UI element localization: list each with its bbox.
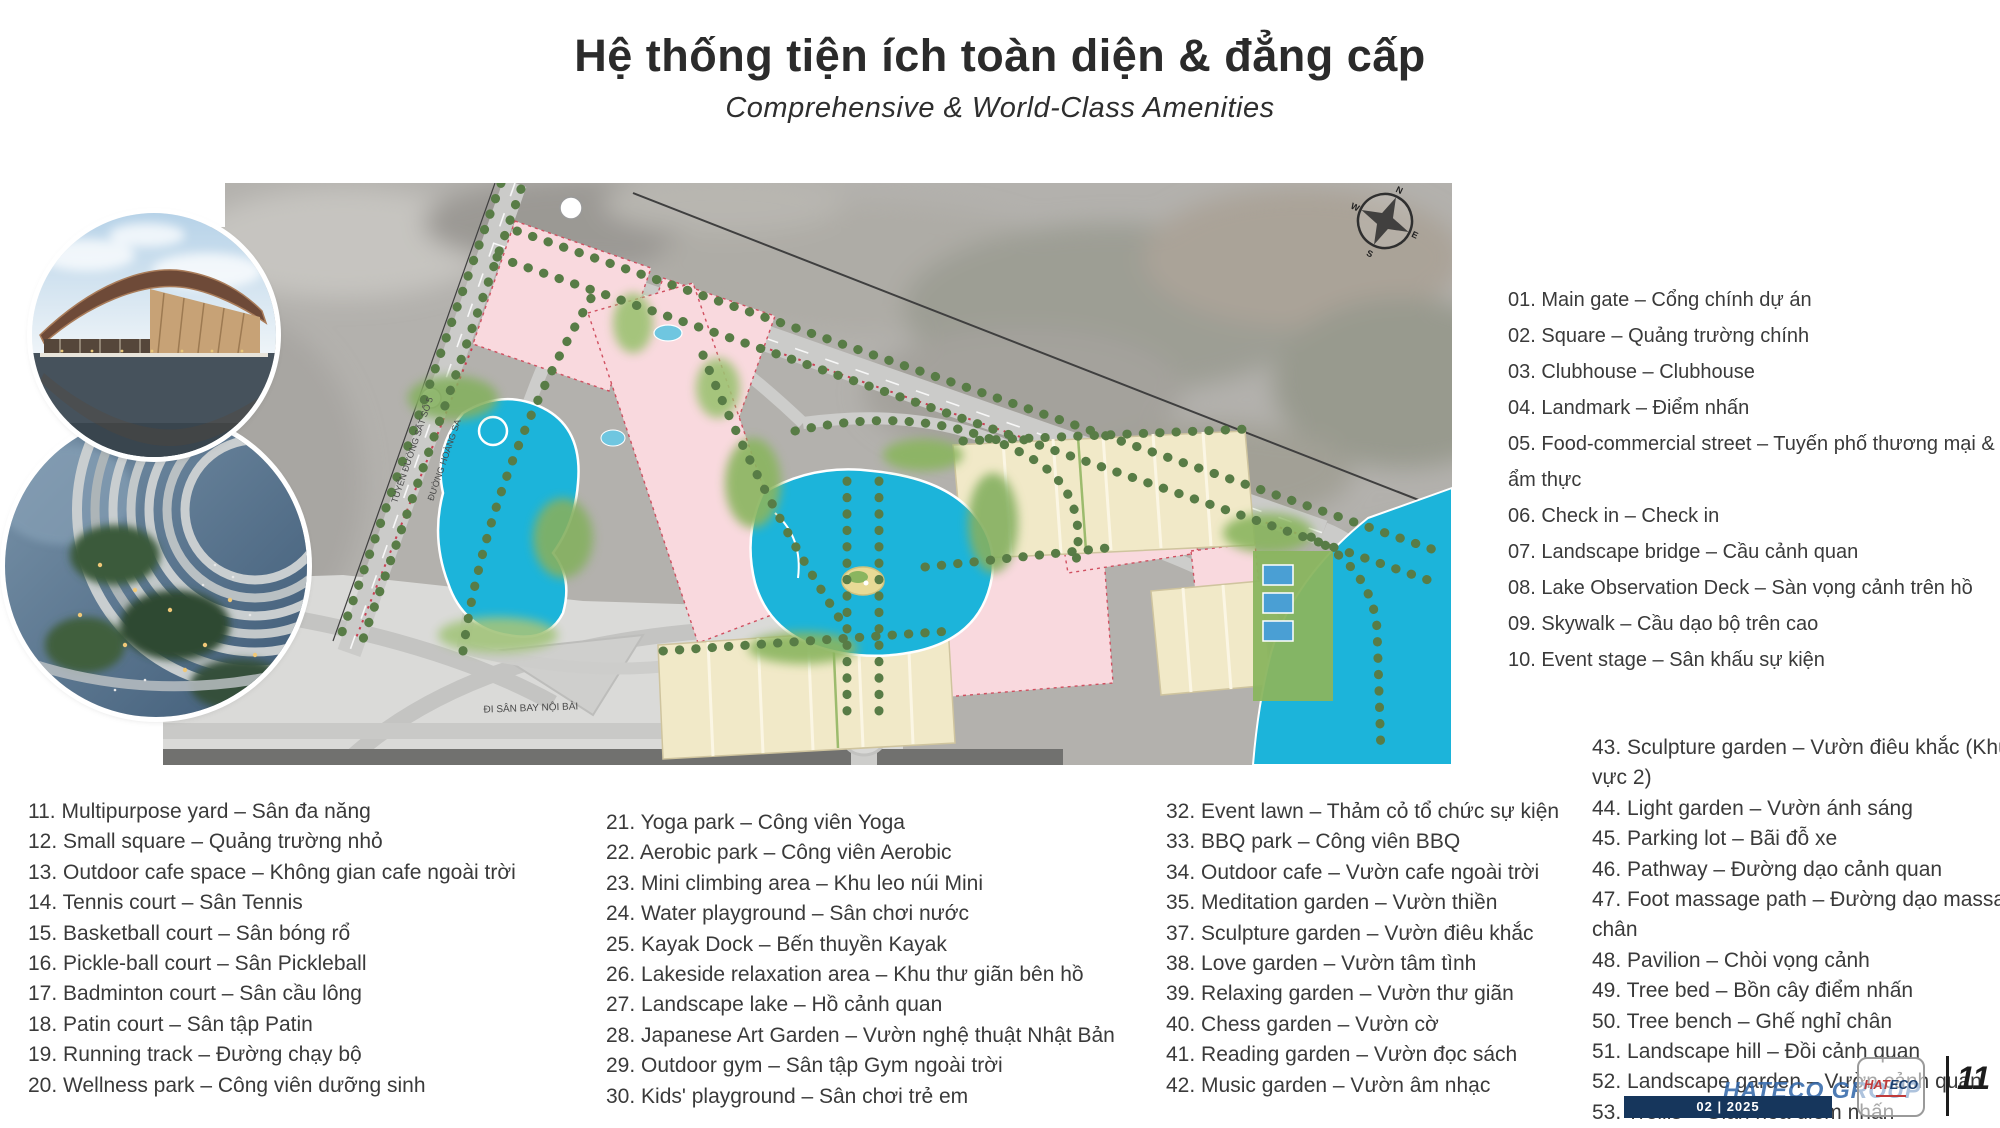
list-item: 43. Sculpture garden – Vườn điêu khắc (K…: [1592, 733, 2000, 794]
list-item: 49. Tree bed – Bồn cây điểm nhấn: [1592, 976, 2000, 1006]
list-item: 17. Badminton court – Sân cầu lông: [28, 979, 593, 1009]
list-item: 03. Clubhouse – Clubhouse: [1508, 354, 2000, 390]
list-item: 40. Chess garden – Vườn cờ: [1166, 1010, 1586, 1040]
page-subtitle: Comprehensive & World-Class Amenities: [0, 92, 2000, 125]
list-item: 04. Landmark – Điểm nhấn: [1508, 390, 2000, 426]
masterplan-canvas: N E S W TUYẾN ĐƯỜNG SẮT SỐ 5 ĐƯỜNG HOÀNG…: [163, 183, 1452, 765]
list-item: 41. Reading garden – Vườn đọc sách: [1166, 1040, 1586, 1070]
amenities-column-3: 32. Event lawn – Thảm cỏ tổ chức sự kiện…: [1166, 797, 1586, 1101]
list-item: 50. Tree bench – Ghế nghỉ chân: [1592, 1007, 2000, 1037]
list-item: 15. Basketball court – Sân bóng rổ: [28, 919, 593, 949]
clubhouse-photo: [32, 213, 276, 457]
list-item: 19. Running track – Đường chạy bộ: [28, 1040, 593, 1070]
list-item: 44. Light garden – Vườn ánh sáng: [1592, 794, 2000, 824]
page-number-divider: [1946, 1056, 1949, 1116]
list-item: 39. Relaxing garden – Vườn thư giãn: [1166, 979, 1586, 1009]
list-item: 34. Outdoor cafe – Vườn cafe ngoài trời: [1166, 858, 1586, 888]
hateco-logo: HATECO: [1857, 1057, 1925, 1117]
list-item: 46. Pathway – Đường dạo cảnh quan: [1592, 855, 2000, 885]
list-item: 13. Outdoor cafe space – Không gian cafe…: [28, 858, 593, 888]
amenities-column-4: 43. Sculpture garden – Vườn điêu khắc (K…: [1592, 733, 2000, 1128]
list-item: 48. Pavilion – Chòi vọng cảnh: [1592, 946, 2000, 976]
list-item: 22. Aerobic park – Công viên Aerobic: [606, 838, 1171, 868]
page-number: 11: [1957, 1060, 1990, 1097]
amenities-column-1: 11. Multipurpose yard – Sân đa năng12. S…: [28, 797, 593, 1101]
page-header: Hệ thống tiện ích toàn diện & đẳng cấp C…: [0, 30, 2000, 125]
list-item: 24. Water playground – Sân chơi nước: [606, 899, 1171, 929]
list-item: 38. Love garden – Vườn tâm tình: [1166, 949, 1586, 979]
list-item: 05. Food-commercial street – Tuyến phố t…: [1508, 426, 2000, 498]
page-title: Hệ thống tiện ích toàn diện & đẳng cấp: [0, 30, 2000, 82]
list-item: 26. Lakeside relaxation area – Khu thư g…: [606, 960, 1171, 990]
list-item: 37. Sculpture garden – Vườn điêu khắc: [1166, 919, 1586, 949]
logo-rule: [1876, 1095, 1906, 1097]
list-item: 01. Main gate – Cổng chính dự án: [1508, 282, 2000, 318]
list-item: 51. Landscape hill – Đồi cảnh quan: [1592, 1037, 2000, 1067]
list-item: 18. Patin court – Sân tập Patin: [28, 1010, 593, 1040]
list-item: 47. Foot massage path – Đường dạo massag…: [1592, 885, 2000, 946]
list-item: 06. Check in – Check in: [1508, 498, 2000, 534]
list-item: 12. Small square – Quảng trường nhỏ: [28, 827, 593, 857]
list-item: 21. Yoga park – Công viên Yoga: [606, 808, 1171, 838]
amphitheater-photo: [5, 415, 307, 717]
list-item: 30. Kids' playground – Sân chơi trẻ em: [606, 1082, 1171, 1112]
amenities-column-2: 21. Yoga park – Công viên Yoga22. Aerobi…: [606, 808, 1171, 1112]
list-item: 27. Landscape lake – Hồ cảnh quan: [606, 990, 1171, 1020]
logo-part-blue: ECO: [1890, 1077, 1918, 1092]
amenities-column-right: 01. Main gate – Cổng chính dự án02. Squa…: [1508, 282, 2000, 678]
list-item: 29. Outdoor gym – Sân tập Gym ngoài trời: [606, 1051, 1171, 1081]
list-item: 20. Wellness park – Công viên dưỡng sinh: [28, 1071, 593, 1101]
list-item: 08. Lake Observation Deck – Sàn vọng cản…: [1508, 570, 2000, 606]
list-item: 11. Multipurpose yard – Sân đa năng: [28, 797, 593, 827]
list-item: 07. Landscape bridge – Cầu cảnh quan: [1508, 534, 2000, 570]
list-item: 28. Japanese Art Garden – Vườn nghệ thuậ…: [606, 1021, 1171, 1051]
list-item: 10. Event stage – Sân khấu sự kiện: [1508, 642, 2000, 678]
list-item: 16. Pickle-ball court – Sân Pickleball: [28, 949, 593, 979]
list-item: 45. Parking lot – Bãi đỗ xe: [1592, 824, 2000, 854]
list-item: 02. Square – Quảng trường chính: [1508, 318, 2000, 354]
hateco-logo-text: HATECO: [1864, 1077, 1918, 1092]
masterplan-map: N E S W TUYẾN ĐƯỜNG SẮT SỐ 5 ĐƯỜNG HOÀNG…: [163, 183, 1452, 765]
list-item: 33. BBQ park – Công viên BBQ: [1166, 827, 1586, 857]
list-item: 35. Meditation garden – Vườn thiền: [1166, 888, 1586, 918]
list-item: 23. Mini climbing area – Khu leo núi Min…: [606, 869, 1171, 899]
list-item: 42. Music garden – Vườn âm nhạc: [1166, 1071, 1586, 1101]
list-item: 09. Skywalk – Cầu dạo bộ trên cao: [1508, 606, 2000, 642]
list-item: 32. Event lawn – Thảm cỏ tổ chức sự kiện: [1166, 797, 1586, 827]
list-item: 25. Kayak Dock – Bến thuyền Kayak: [606, 930, 1171, 960]
list-item: 14. Tennis court – Sân Tennis: [28, 888, 593, 918]
logo-part-red: HAT: [1864, 1077, 1890, 1092]
date-badge: 02 | 2025: [1624, 1096, 1832, 1118]
